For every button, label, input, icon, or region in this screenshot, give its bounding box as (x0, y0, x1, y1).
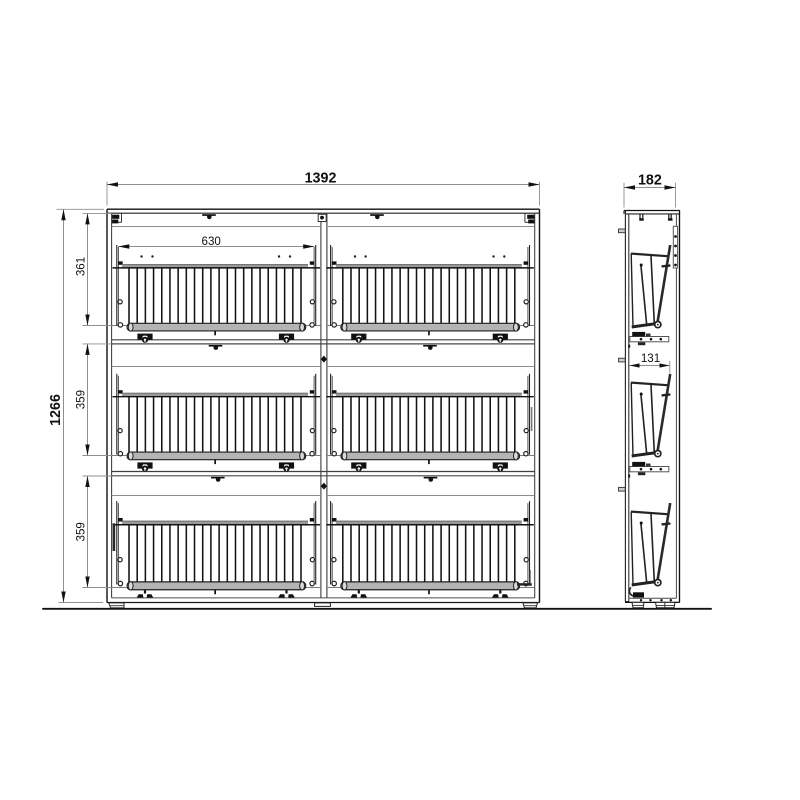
svg-text:359: 359 (74, 522, 87, 541)
svg-text:1392: 1392 (305, 171, 337, 187)
svg-text:1266: 1266 (48, 394, 64, 426)
svg-text:131: 131 (641, 352, 660, 365)
svg-text:630: 630 (202, 235, 221, 248)
svg-text:182: 182 (638, 173, 662, 189)
svg-text:359: 359 (74, 390, 87, 409)
svg-text:361: 361 (74, 257, 87, 276)
